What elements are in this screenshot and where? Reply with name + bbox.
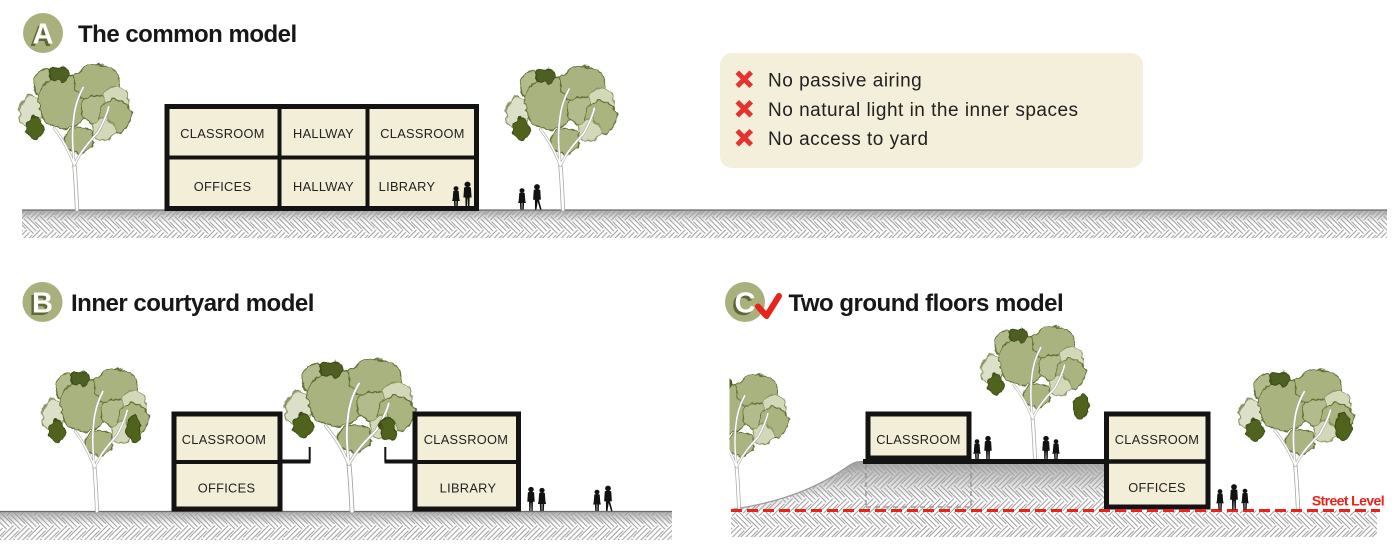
svg-text:B: B: [32, 288, 53, 320]
svg-text:Inner courtyard model: Inner courtyard model: [71, 290, 314, 317]
svg-text:OFFICES: OFFICES: [194, 179, 252, 194]
svg-text:No access to yard: No access to yard: [768, 129, 929, 150]
svg-text:HALLWAY: HALLWAY: [293, 179, 354, 194]
svg-text:Two ground floors model: Two ground floors model: [789, 290, 1064, 317]
svg-text:OFFICES: OFFICES: [1128, 480, 1186, 495]
svg-text:A: A: [33, 19, 54, 51]
svg-text:C: C: [735, 288, 756, 320]
svg-text:OFFICES: OFFICES: [198, 481, 256, 496]
svg-text:CLASSROOM: CLASSROOM: [180, 126, 264, 141]
svg-text:CLASSROOM: CLASSROOM: [380, 126, 464, 141]
svg-text:LIBRARY: LIBRARY: [379, 179, 436, 194]
svg-text:CLASSROOM: CLASSROOM: [424, 432, 508, 447]
svg-text:CLASSROOM: CLASSROOM: [182, 432, 266, 447]
svg-text:The common model: The common model: [78, 21, 297, 48]
svg-text:HALLWAY: HALLWAY: [293, 126, 354, 141]
svg-text:Street Level: Street Level: [1312, 493, 1384, 509]
svg-text:LIBRARY: LIBRARY: [440, 481, 497, 496]
svg-text:No natural light in the inner: No natural light in the inner spaces: [768, 100, 1079, 121]
svg-text:CLASSROOM: CLASSROOM: [876, 432, 960, 447]
svg-text:No passive airing: No passive airing: [768, 71, 922, 92]
svg-text:CLASSROOM: CLASSROOM: [1115, 432, 1199, 447]
